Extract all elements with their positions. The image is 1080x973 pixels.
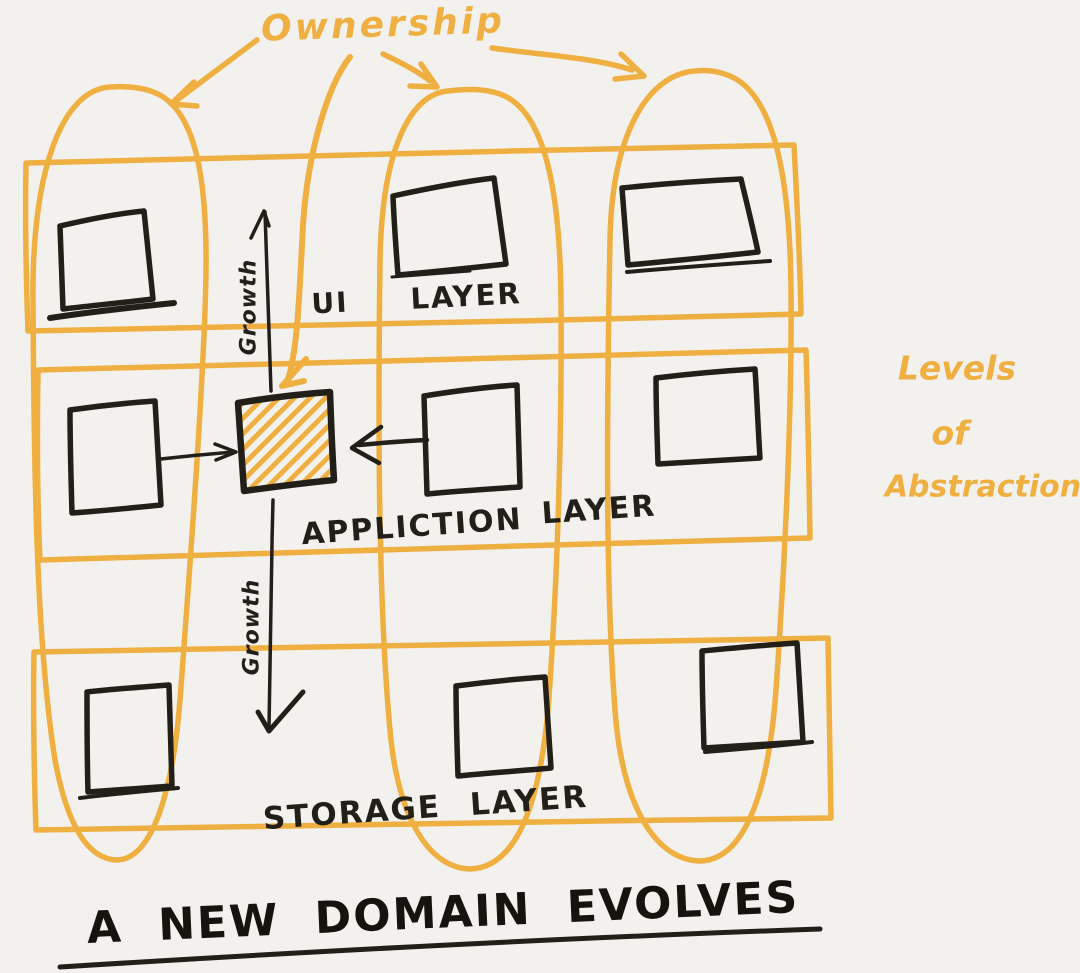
square-storage-left [80, 685, 178, 798]
ui-layer-label-word: UI [311, 286, 350, 321]
ownership-column-middle [379, 89, 561, 869]
whiteboard-sketch: Ownership UI LAYER APPLICTION LAYER STOR… [0, 0, 1080, 973]
ownership-arrow-right-icon [492, 48, 644, 79]
levels-of-abstraction-line2: of [931, 414, 968, 453]
ownership-column-left [33, 87, 206, 860]
square-app-left [70, 401, 161, 513]
growth-label-bottom: Growth [240, 579, 265, 676]
ownership-arrow-middle-icon [383, 54, 437, 87]
square-app-center-highlighted [238, 392, 334, 491]
growth-label-top: Growth [237, 259, 262, 356]
levels-of-abstraction-line3: Abstraction [885, 470, 1080, 505]
ownership-arrow-left-icon [171, 40, 257, 106]
square-storage-right [702, 643, 812, 752]
square-ui-left [50, 211, 174, 318]
ownership-label: Ownership [260, 0, 505, 49]
square-ui-middle [392, 178, 506, 277]
square-app-right [656, 369, 760, 464]
arrow-right-square-to-center-icon [352, 427, 427, 463]
square-app-middle-right [424, 385, 520, 494]
square-ui-right [622, 179, 770, 272]
levels-of-abstraction-line1: Levels [898, 349, 1016, 388]
growth-arrow-down-icon [258, 500, 303, 731]
ownership-flow-arrow-icon [282, 57, 350, 386]
square-storage-middle [456, 677, 551, 776]
ui-layer-label-suffix: LAYER [410, 276, 523, 316]
